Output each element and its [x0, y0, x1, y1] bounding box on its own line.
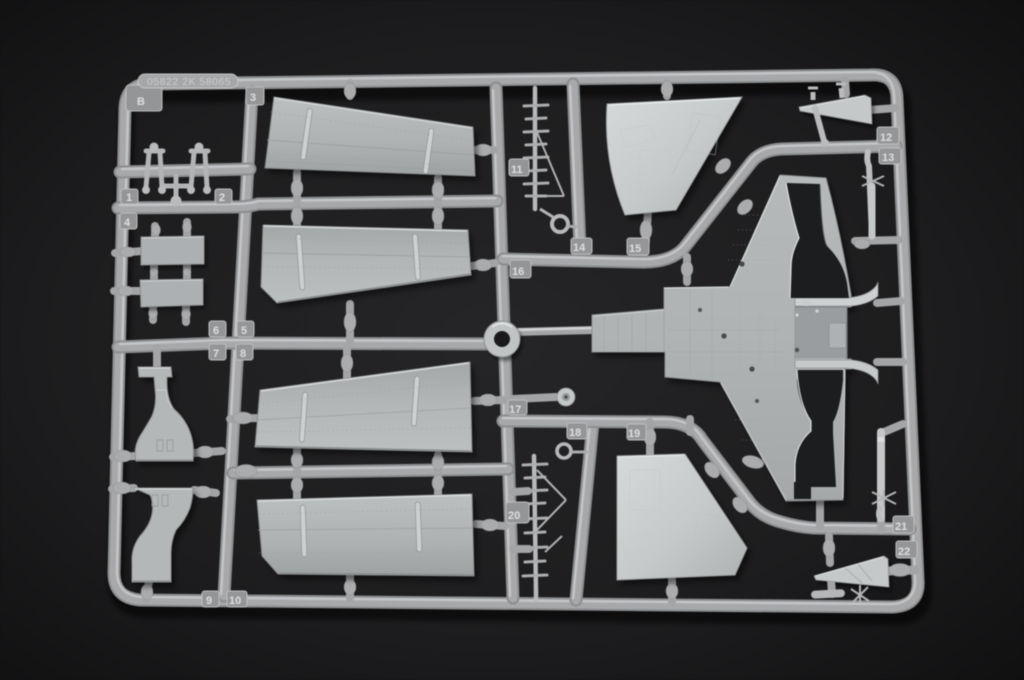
- svg-text:8: 8: [240, 348, 246, 360]
- svg-text:9: 9: [206, 595, 212, 607]
- svg-text:13: 13: [882, 152, 894, 164]
- svg-text:1: 1: [126, 192, 132, 204]
- svg-text:17: 17: [509, 404, 521, 416]
- svg-text:11: 11: [511, 164, 523, 176]
- svg-text:14: 14: [573, 242, 586, 254]
- svg-text:16: 16: [512, 266, 524, 278]
- svg-text:18: 18: [569, 427, 581, 439]
- svg-text:19: 19: [628, 428, 640, 440]
- svg-text:05822 2K 58065: 05822 2K 58065: [147, 76, 231, 88]
- svg-text:10: 10: [229, 595, 241, 607]
- svg-text:12: 12: [880, 132, 892, 144]
- svg-text:B: B: [137, 96, 145, 108]
- svg-text:5: 5: [241, 325, 247, 337]
- svg-text:4: 4: [124, 217, 131, 229]
- svg-text:15: 15: [629, 243, 641, 255]
- svg-text:7: 7: [213, 348, 219, 360]
- svg-text:22: 22: [898, 546, 910, 558]
- svg-text:21: 21: [895, 521, 907, 533]
- svg-text:3: 3: [250, 92, 256, 104]
- svg-text:20: 20: [508, 510, 520, 522]
- svg-text:6: 6: [213, 325, 219, 337]
- svg-text:2: 2: [219, 192, 225, 204]
